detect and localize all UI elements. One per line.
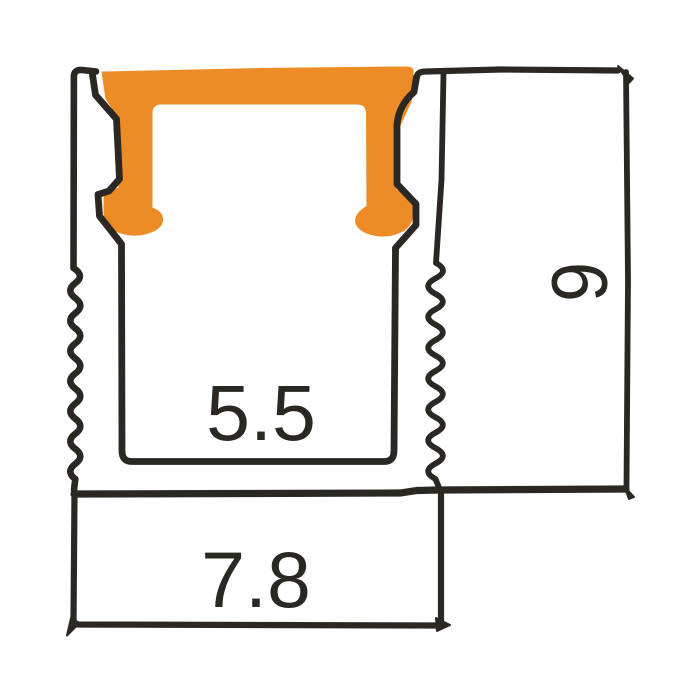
svg-text:5.5: 5.5 (206, 368, 316, 457)
svg-text:9: 9 (535, 262, 624, 302)
svg-text:7.8: 7.8 (201, 535, 311, 624)
